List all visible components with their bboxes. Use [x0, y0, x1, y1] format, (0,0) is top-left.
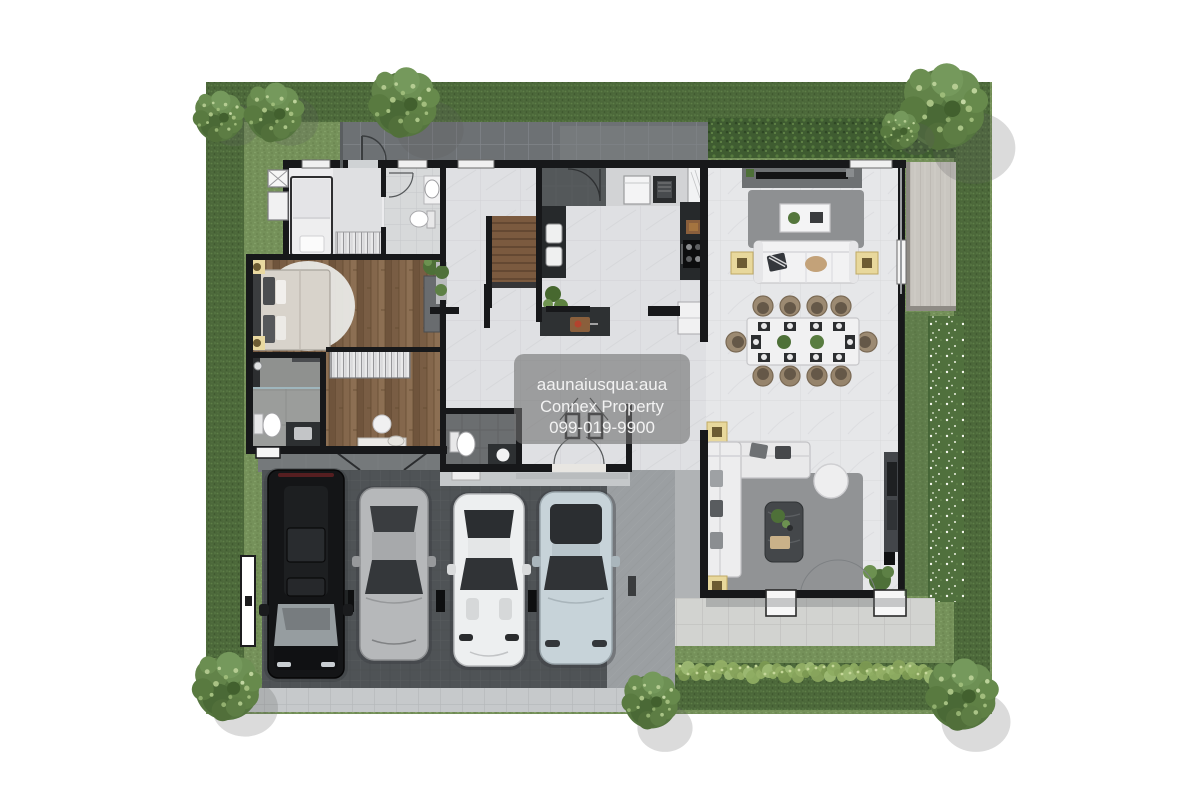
- svg-text:Connex Property: Connex Property: [540, 398, 665, 416]
- svg-text:099-019-9900: 099-019-9900: [549, 418, 655, 437]
- svg-text:aaunaiusqua:aua: aaunaiusqua:aua: [537, 375, 668, 394]
